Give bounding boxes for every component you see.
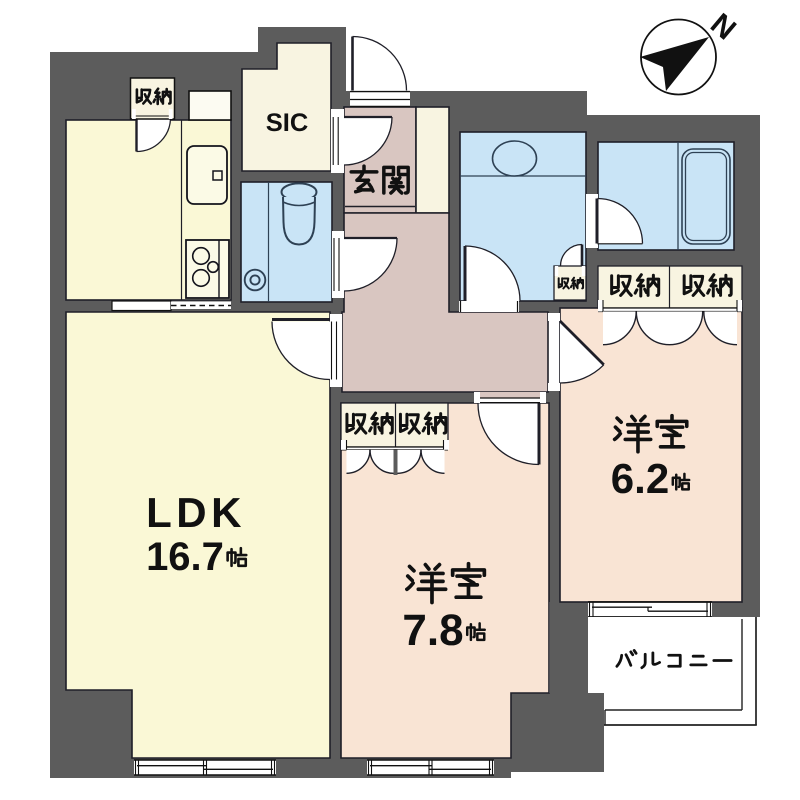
- svg-text:16.7: 16.7: [146, 535, 224, 579]
- svg-text:7.8: 7.8: [402, 606, 463, 655]
- svg-text:SIC: SIC: [266, 109, 309, 137]
- svg-text:6.2: 6.2: [611, 455, 669, 502]
- svg-text:LDK: LDK: [146, 489, 246, 536]
